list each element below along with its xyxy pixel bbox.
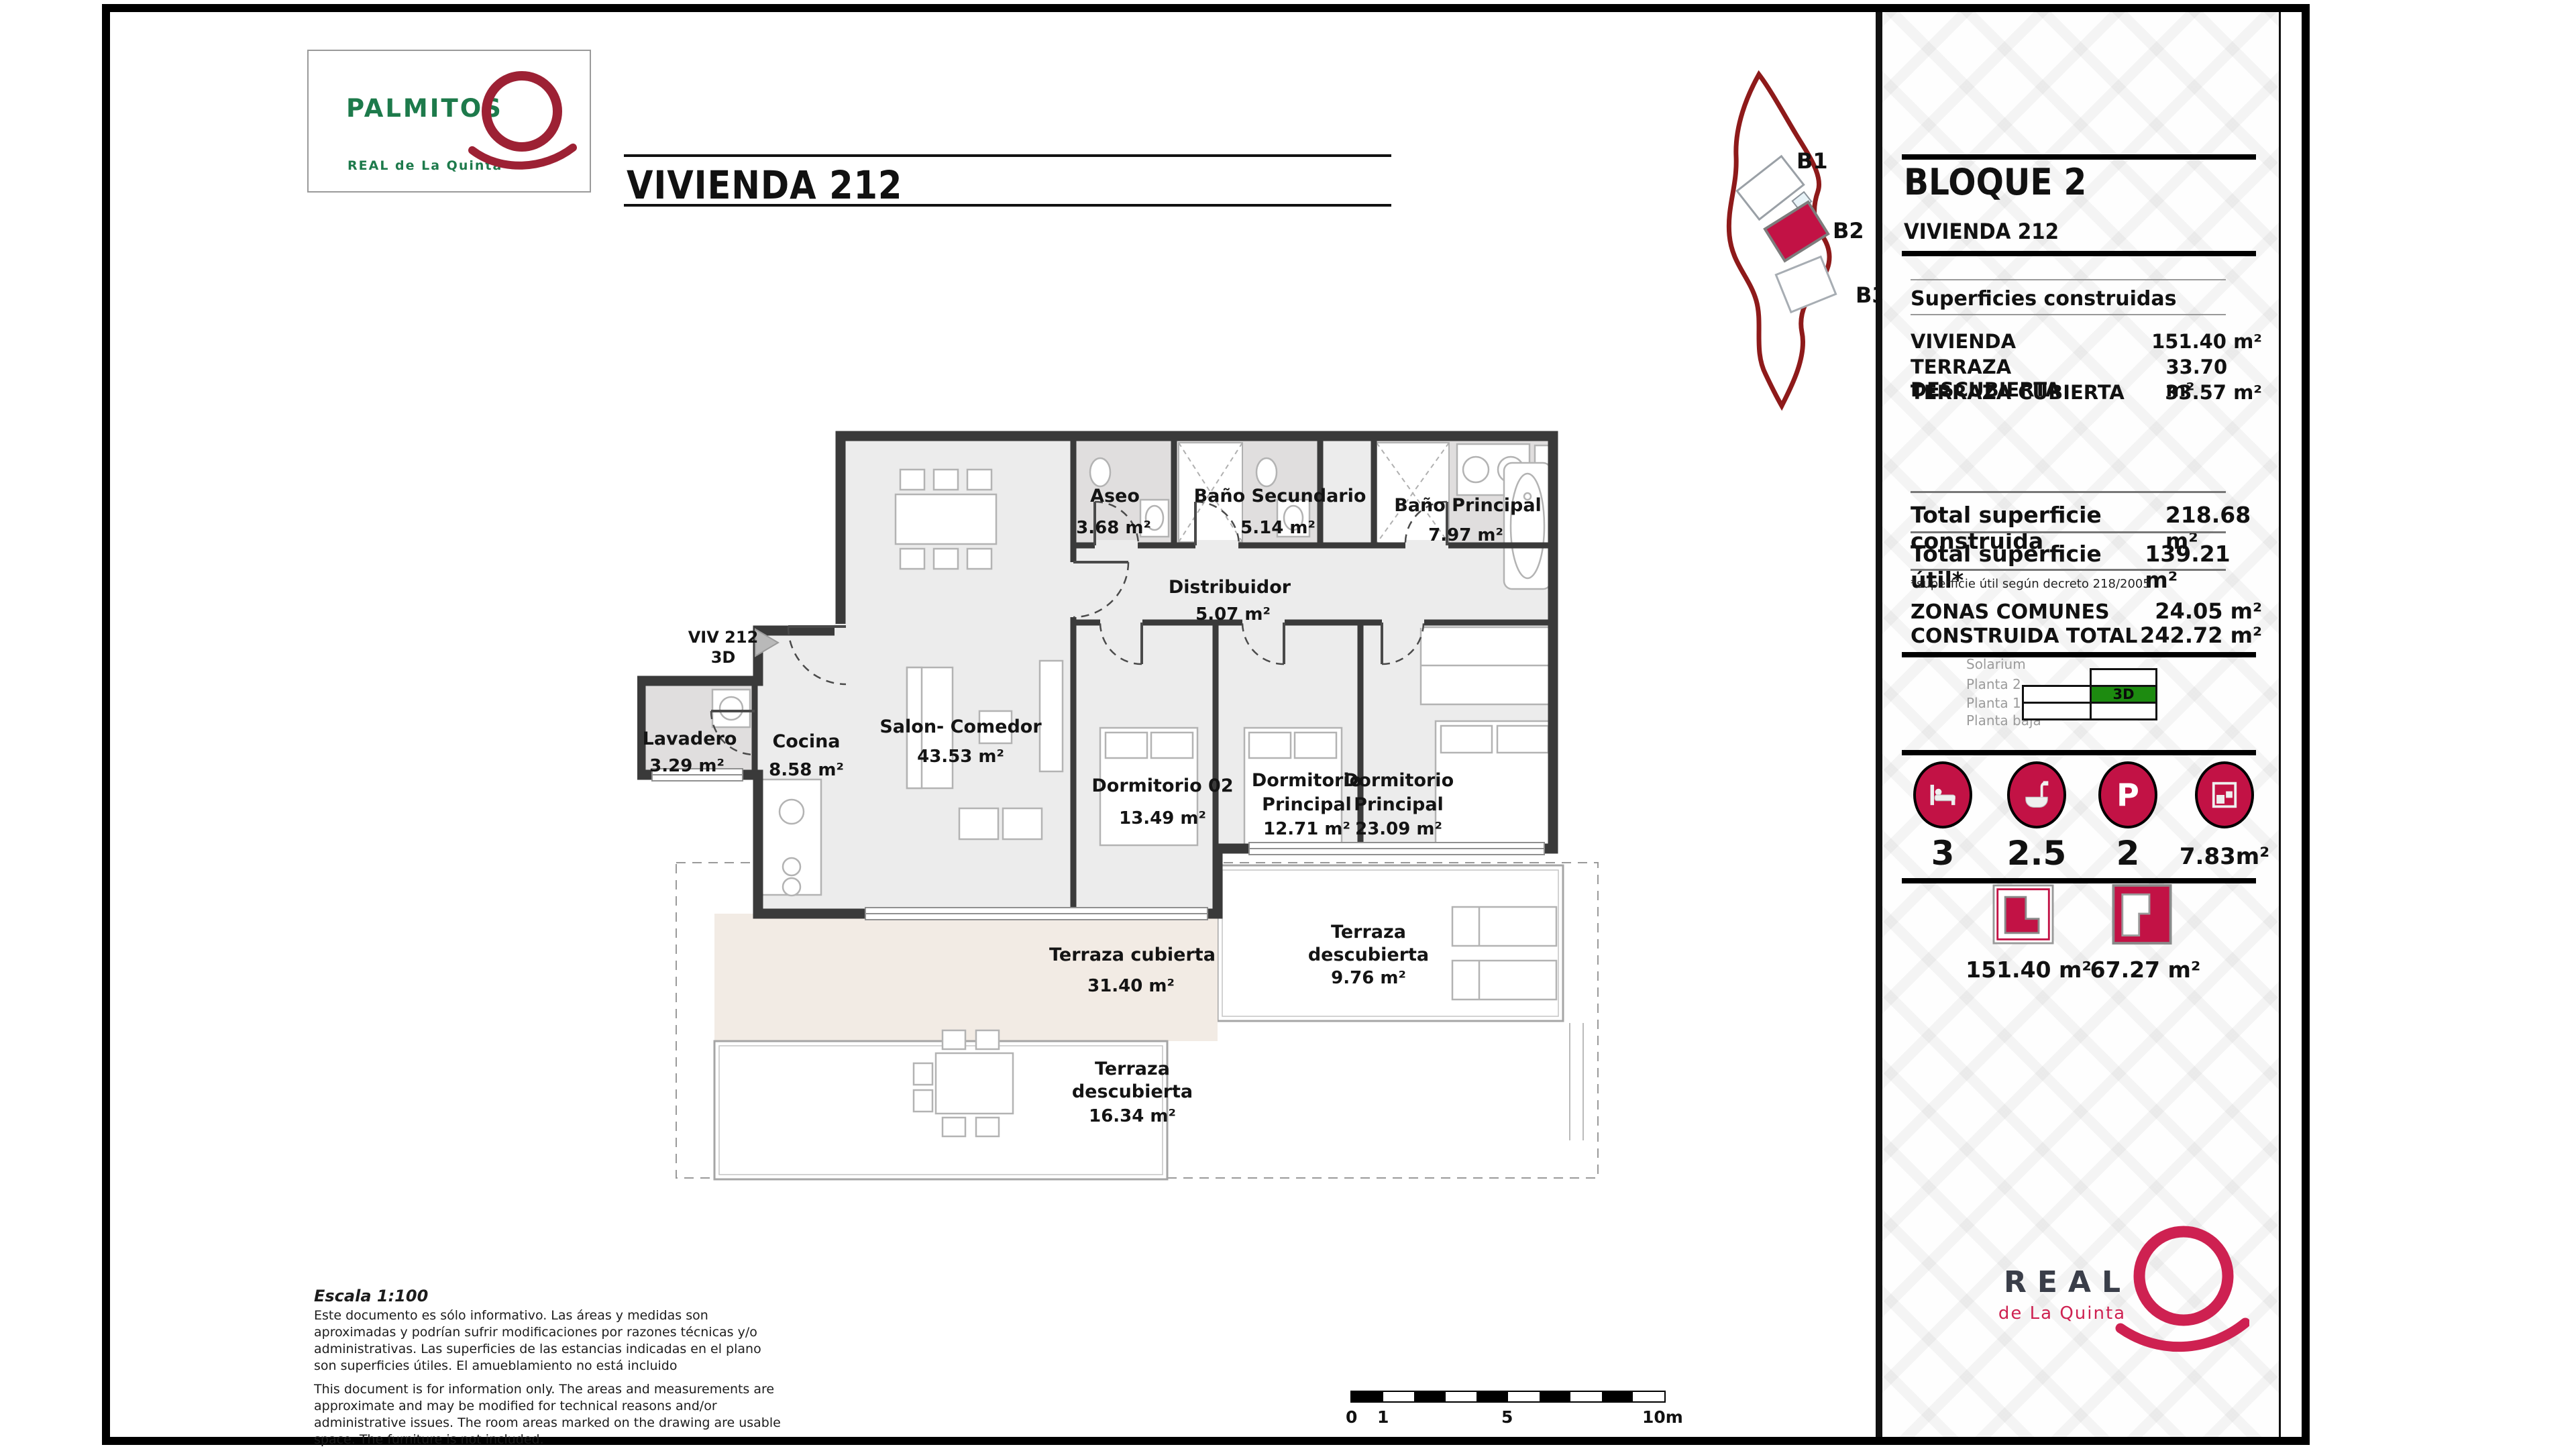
scale-tick-5: 5 xyxy=(1501,1407,1513,1427)
stat-bathrooms-value: 2.5 xyxy=(1990,834,2084,873)
palmitos-q-icon xyxy=(462,63,579,184)
room-bano-ppal: Baño Principal xyxy=(1394,495,1542,516)
decree-footnote: *superficie útil según decreto 218/2005 xyxy=(1911,577,2151,591)
label-b1: B1 xyxy=(1796,148,1828,174)
surface-label: TERRAZA CUBIERTA xyxy=(1911,381,2125,404)
total-usable-value: 139.21 m² xyxy=(2145,541,2262,593)
interior-plan-icon xyxy=(1992,884,2054,945)
stat-bedrooms: 3 xyxy=(1896,761,1990,873)
parking-icon: P xyxy=(2098,761,2157,828)
room-terraza-desc1: Terraza xyxy=(1331,922,1406,942)
entrance-unit-label: VIV 212 xyxy=(688,628,759,647)
unit-title: VIVIENDA 212 xyxy=(1904,219,2059,244)
construida-total-value: 242.72 m² xyxy=(2140,623,2262,648)
surface-value: 151.40 m² xyxy=(2151,330,2262,353)
bath-icon xyxy=(2007,761,2066,828)
room-terraza-desc1-l2: descubierta xyxy=(1308,945,1429,965)
surface-value: 33.57 m² xyxy=(2165,381,2262,404)
room-salon: Salon- Comedor xyxy=(879,716,1042,737)
stat-storage-value: 7.83m² xyxy=(2178,843,2271,870)
room-dorm-ppal1-area: 12.71 m² xyxy=(1263,819,1350,839)
terrace-area-label: 67.27 m² xyxy=(2078,957,2212,983)
disclaimer-en: This document is for information only. T… xyxy=(314,1381,784,1448)
room-dorm-ppal2-l2: Principal xyxy=(1354,794,1444,815)
scale-title: Escala 1:100 xyxy=(314,1288,784,1305)
stat-parking: P 2 xyxy=(2081,761,2175,873)
room-distribuidor: Distribuidor xyxy=(1169,577,1291,598)
terrace-plan-icon xyxy=(2112,884,2172,945)
parking-letter: P xyxy=(2116,777,2139,813)
stat-storage: 7.83m² xyxy=(2178,761,2271,870)
brand-q-icon xyxy=(2108,1221,2249,1366)
document-sheet: PALMITOS REAL de La Quinta VIVIENDA 212 … xyxy=(102,4,2310,1445)
surface-label: VIVIENDA xyxy=(1911,330,2016,353)
storage-icon xyxy=(2195,761,2254,828)
surface-row: VIVIENDA 151.40 m² xyxy=(1911,330,2262,353)
room-lavadero-area: 3.29 m² xyxy=(649,756,724,776)
floor-cell-planta1-active-3d[interactable]: 3D xyxy=(2090,685,2157,704)
room-bano-ppal-area: 7.97 m² xyxy=(1428,525,1503,545)
floor-cell-plantabaja-right xyxy=(2090,702,2157,720)
terrace-steps xyxy=(1570,1023,1583,1140)
construida-total-row: CONSTRUIDA TOTAL 242.72 m² xyxy=(1911,623,2262,648)
room-bano-sec: Baño Secundario xyxy=(1194,486,1366,506)
totals-rule-3 xyxy=(1911,569,2226,571)
floor-plan: VIV 212 3D Aseo 3.68 m² Baño Secundario … xyxy=(637,388,1617,1199)
title-rule-bottom xyxy=(624,204,1391,207)
block-title: BLOQUE 2 xyxy=(1904,161,2086,203)
stat-bathrooms: 2.5 xyxy=(1990,761,2084,873)
zonas-comunes-value: 24.05 m² xyxy=(2155,598,2262,624)
label-b3: B3 xyxy=(1856,282,1876,308)
site-map: B1 B2 B3 xyxy=(1707,62,1876,418)
room-terraza-desc2-l2: descubierta xyxy=(1072,1081,1193,1102)
scale-bar xyxy=(1350,1391,1666,1403)
bed-icon xyxy=(1913,761,1972,828)
page-title: VIVIENDA 212 xyxy=(627,162,902,208)
surface-row: TERRAZA CUBIERTA 33.57 m² xyxy=(1911,381,2262,404)
room-salon-area: 43.53 m² xyxy=(917,747,1004,767)
room-terraza-cubierta: Terraza cubierta xyxy=(1049,945,1216,965)
surfaces-rule-bottom xyxy=(1911,314,2226,315)
room-distribuidor-area: 5.07 m² xyxy=(1195,604,1271,625)
title-rule-top xyxy=(624,154,1391,157)
sidebar-rule-1 xyxy=(1902,154,2256,160)
scale-tick-1: 1 xyxy=(1377,1407,1389,1427)
room-dorm-ppal2-area: 23.09 m² xyxy=(1355,819,1442,839)
room-bano-sec-area: 5.14 m² xyxy=(1240,518,1316,538)
interior-area-label: 151.40 m² xyxy=(1962,957,2096,983)
surfaces-heading: Superficies construidas xyxy=(1911,287,2177,311)
room-dorm-ppal2: Dormitorio xyxy=(1344,770,1454,791)
floor-label-solarium: Solarium xyxy=(1966,656,2026,672)
floor-label-planta1: Planta 1 xyxy=(1966,695,2021,711)
sidebar-rule-5 xyxy=(1902,878,2256,883)
room-cocina-area: 8.58 m² xyxy=(769,760,844,780)
room-terraza-desc2-area: 16.34 m² xyxy=(1089,1106,1176,1126)
room-dorm-ppal1-l2: Principal xyxy=(1262,794,1352,815)
zonas-comunes-row: ZONAS COMUNES 24.05 m² xyxy=(1911,598,2262,624)
room-aseo: Aseo xyxy=(1090,486,1140,506)
room-terraza-desc1-area: 9.76 m² xyxy=(1331,968,1406,988)
footer-disclaimer: Escala 1:100 Este documento es sólo info… xyxy=(314,1288,784,1455)
room-terraza-cubierta-area: 31.40 m² xyxy=(1087,976,1175,996)
stat-bedrooms-value: 3 xyxy=(1896,834,1990,873)
room-dorm02: Dormitorio 02 xyxy=(1091,775,1233,796)
zonas-comunes-label: ZONAS COMUNES xyxy=(1911,600,2110,624)
room-dorm02-area: 13.49 m² xyxy=(1119,808,1206,828)
sidebar-rule-3 xyxy=(1902,652,2256,657)
scale-tick-0: 0 xyxy=(1346,1407,1357,1427)
room-terraza-desc2: Terraza xyxy=(1095,1059,1170,1079)
stat-parking-value: 2 xyxy=(2081,834,2175,873)
entrance-3d-label[interactable]: 3D xyxy=(711,648,736,667)
room-cocina: Cocina xyxy=(772,731,840,752)
scale-tick-10: 10m xyxy=(1642,1407,1683,1427)
room-aseo-area: 3.68 m² xyxy=(1076,518,1151,538)
totals-rule-1 xyxy=(1911,491,2226,493)
floor-cell-planta1-left xyxy=(2022,685,2092,704)
label-b2: B2 xyxy=(1833,218,1864,244)
floor-cell-plantabaja-left xyxy=(2022,702,2092,720)
sidebar-rule-2 xyxy=(1902,251,2256,256)
floor-cell-planta2 xyxy=(2090,668,2157,687)
floor-label-planta2: Planta 2 xyxy=(1966,676,2021,692)
surfaces-rule-top xyxy=(1911,279,2226,280)
disclaimer-es: Este documento es sólo informativo. Las … xyxy=(314,1307,784,1375)
palmitos-logo: PALMITOS REAL de La Quinta xyxy=(307,50,591,193)
room-lavadero: Lavadero xyxy=(643,729,737,749)
construida-total-label: CONSTRUIDA TOTAL xyxy=(1911,625,2137,648)
sidebar-rule-4 xyxy=(1902,750,2256,755)
totals-rule-2 xyxy=(1911,531,2226,533)
